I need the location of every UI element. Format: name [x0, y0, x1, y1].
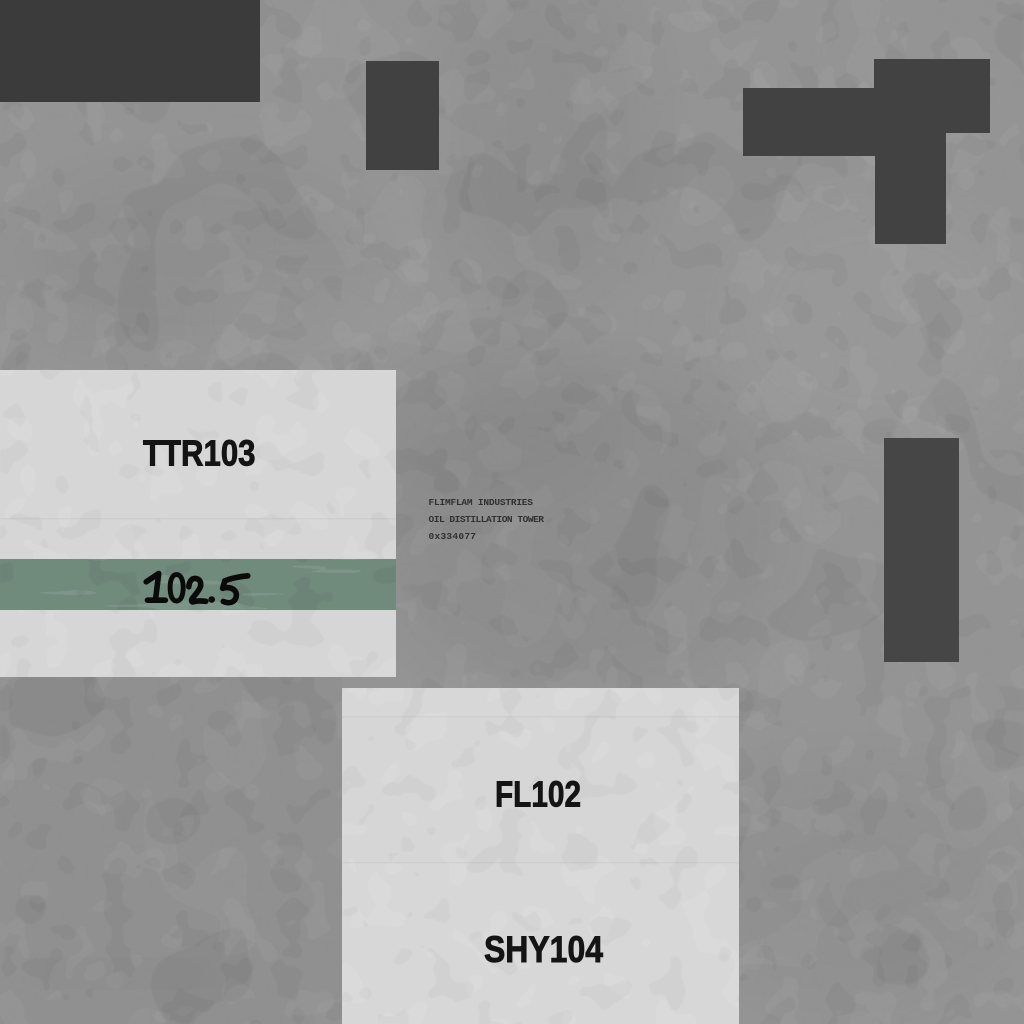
svg-text:SHY104: SHY104	[484, 928, 603, 970]
svg-text:FL102: FL102	[495, 774, 581, 815]
svg-text:TTR103: TTR103	[143, 433, 256, 474]
svg-text:FLIMFLAM INDUSTRIES: FLIMFLAM INDUSTRIES	[429, 497, 534, 508]
svg-text:OIL DISTILLATION TOWER: OIL DISTILLATION TOWER	[429, 514, 545, 525]
svg-text:0x334077: 0x334077	[429, 531, 477, 542]
